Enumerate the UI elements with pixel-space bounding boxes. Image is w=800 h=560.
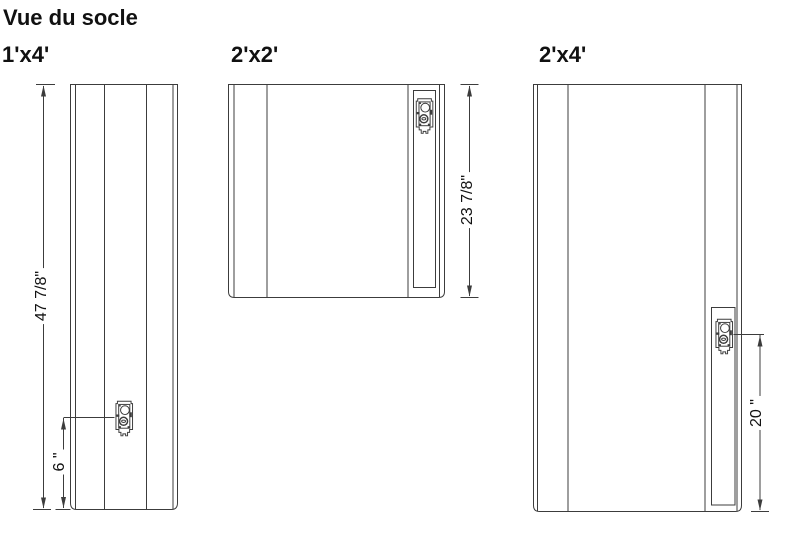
panel-2x4-drawing bbox=[534, 85, 770, 512]
drawing-canvas bbox=[0, 0, 800, 560]
dim-offset-1x4: 6 " bbox=[50, 449, 70, 474]
mounting-connector-icon bbox=[116, 401, 133, 436]
panel-label-1x4: 1'x4' bbox=[2, 42, 49, 68]
panel-label-2x4: 2'x4' bbox=[539, 42, 586, 68]
panel-1x4-drawing bbox=[33, 85, 178, 510]
socle-view-diagram: Vue du socle 1'x4' 2'x2' 2'x4' 47 7/8" 6… bbox=[0, 0, 800, 560]
mounting-connector-icon bbox=[716, 319, 733, 354]
mounting-connector-icon bbox=[416, 99, 433, 134]
panel-label-2x2: 2'x2' bbox=[231, 42, 278, 68]
dim-height-2x2: 23 7/8" bbox=[458, 172, 478, 228]
dim-height-1x4: 47 7/8" bbox=[32, 268, 52, 324]
panel-2x2-drawing bbox=[229, 85, 479, 298]
dim-offset-2x4: 20 " bbox=[747, 396, 767, 430]
page-title: Vue du socle bbox=[3, 5, 138, 31]
